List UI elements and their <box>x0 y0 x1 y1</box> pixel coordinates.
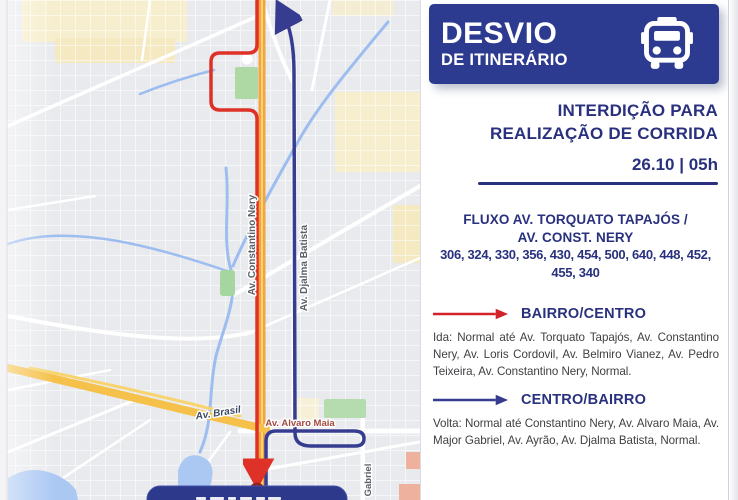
flux-lines-numbers-line2: 455, 340 <box>433 264 718 282</box>
header-subtitle: DE ITINERÁRIO <box>441 51 641 70</box>
header-text: DESVIO DE ITINERÁRIO <box>429 18 641 71</box>
page-left-edge <box>0 0 7 500</box>
flux-heading-line2: AV. CONST. NERY <box>433 229 718 247</box>
direction-route-text: Volta: Normal até Constantino Nery, Av. … <box>433 415 719 449</box>
label-djalma-batista: Av. Djalma Batista <box>299 224 310 311</box>
direction-heading: BAIRRO/CENTRO <box>433 306 719 322</box>
terminal-label-box <box>147 486 347 500</box>
page-right-edge <box>728 0 738 500</box>
label-gabriel: Gabriel <box>363 464 374 497</box>
detour-map: Av. Constantino Nery Av. Djalma Batista … <box>0 0 420 500</box>
direction-route-text: Ida: Normal até Av. Torquato Tapajós, Av… <box>433 329 719 381</box>
notice-block: INTERDIÇÃO PARA REALIZAÇÃO DE CORRIDA 26… <box>433 99 718 185</box>
notice-datetime: 26.10 | 05h <box>433 155 718 175</box>
building-block <box>406 452 420 469</box>
direction-label: CENTRO/BAIRRO <box>521 392 646 408</box>
direction-heading: CENTRO/BAIRRO <box>433 392 719 408</box>
info-panel: DESVIO DE ITINERÁRIO INTERDIÇÃO PARA REA… <box>420 0 738 500</box>
map-edge-fade <box>7 0 55 500</box>
flux-lines-numbers-line1: 306, 324, 330, 356, 430, 454, 500, 640, … <box>433 246 718 264</box>
direction-bairro-centro: BAIRRO/CENTRO Ida: Normal até Av. Torqua… <box>433 306 719 381</box>
direction-label: BAIRRO/CENTRO <box>521 306 646 322</box>
label-alvaro-maia: Av. Alvaro Maia <box>265 418 335 429</box>
right-arrow-icon <box>433 308 509 320</box>
header-banner: DESVIO DE ITINERÁRIO <box>429 4 719 84</box>
direction-centro-bairro: CENTRO/BAIRRO Volta: Normal até Constant… <box>433 392 719 449</box>
map-canvas: Av. Constantino Nery Av. Djalma Batista … <box>0 0 420 500</box>
flux-heading-line1: FLUXO AV. TORQUATO TAPAJÓS / <box>433 211 718 229</box>
notice-line2: REALIZAÇÃO DE CORRIDA <box>433 122 718 145</box>
label-constantino-nery: Av. Constantino Nery <box>247 194 258 295</box>
header-title: DESVIO <box>441 18 641 50</box>
flux-block: FLUXO AV. TORQUATO TAPAJÓS / AV. CONST. … <box>433 211 718 281</box>
building-block <box>399 484 420 500</box>
notice-line1: INTERDIÇÃO PARA <box>433 99 718 122</box>
stadium-landmark <box>242 54 253 65</box>
bus-icon <box>641 17 693 71</box>
right-arrow-icon <box>433 394 509 406</box>
divider-rule <box>478 182 718 186</box>
